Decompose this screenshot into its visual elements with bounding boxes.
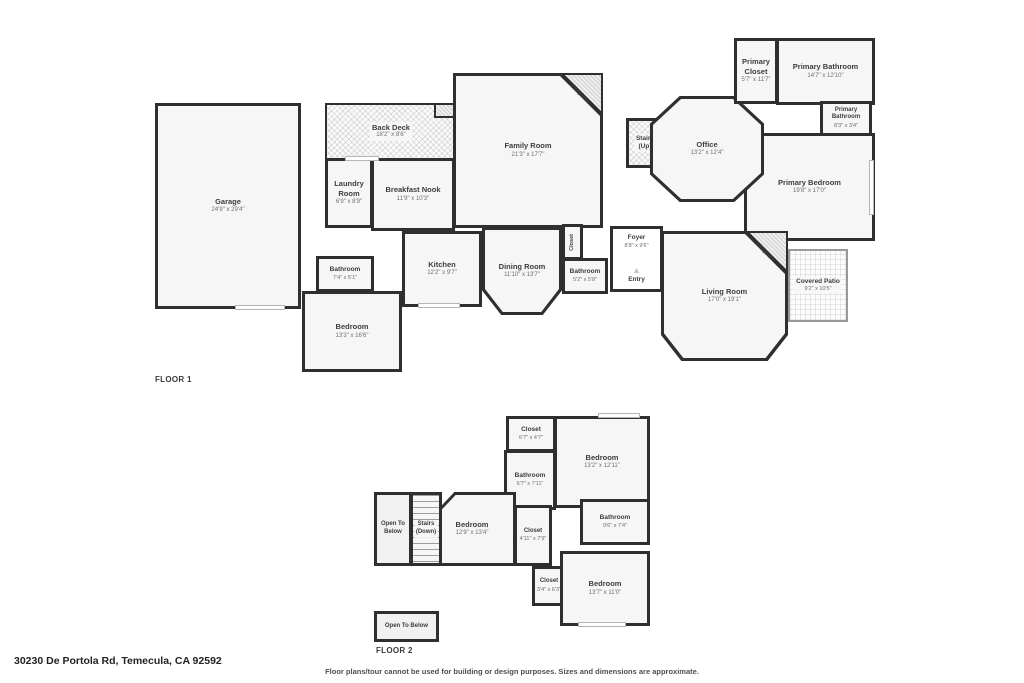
room-bathroom-center: Bathroom 5'2" x 5'8" <box>562 258 608 294</box>
disclaimer-text: Floor plans/tour cannot be used for buil… <box>325 667 699 676</box>
back-deck-label: Back Deck 18'2" x 8'6" <box>370 122 412 142</box>
room-garage: Garage 24'9" x 29'4" <box>155 103 301 309</box>
window-marker <box>345 156 379 161</box>
dining-floor: Dining Room 11'10" x 13'7" <box>485 230 559 312</box>
room2-bathroom-e: Bathroom 9'6" x 7'4" <box>580 499 650 545</box>
office-floor: Office 13'2" x 12'4" <box>653 99 761 199</box>
room2-bedroom-s: Bedroom 13'7" x 11'0" <box>560 551 650 626</box>
room-foyer-entry: Foyer 8'8" x 9'6" ▲ Entry <box>610 226 663 292</box>
room-covered-patio: Covered Patio 9'2" x 10'5" <box>788 249 848 322</box>
floor2-label: FLOOR 2 <box>376 646 413 655</box>
window-marker <box>418 303 460 308</box>
room-primary-closet: Primary Closet 5'7" x 11'7" <box>734 38 778 104</box>
floor-plan-page: Garage 24'9" x 29'4" Back Deck 18'2" x 8… <box>0 0 1024 683</box>
room-kitchen: Kitchen 12'2" x 9'7" <box>402 231 482 307</box>
room2-closet-top: Closet 6'7" x 4'7" <box>506 416 556 452</box>
room2-bedroom-ne: Bedroom 13'2" x 12'11" <box>554 416 650 508</box>
window-marker <box>578 622 626 627</box>
living-room-fireplace: Fireplace <box>744 233 786 275</box>
entry-area: ▲ Entry <box>628 266 645 284</box>
room-dining: Dining Room 11'10" x 13'7" <box>482 227 562 315</box>
property-address: 30230 De Portola Rd, Temecula, CA 92592 <box>14 655 222 667</box>
room2-open-below-left: Open To Below <box>374 492 412 566</box>
room-closet-hall: Closet <box>562 224 583 260</box>
window-marker <box>869 160 874 215</box>
room2-stairs-down: Stairs (Down) <box>410 492 442 566</box>
room-primary-bathroom: Primary Bathroom 14'7" x 12'10" <box>776 38 875 105</box>
room2-open-below-bottom: Open To Below <box>374 611 439 642</box>
window-marker <box>598 413 640 418</box>
room-office: Office 13'2" x 12'4" <box>650 96 764 202</box>
entry-arrow-icon: ▲ <box>632 266 641 275</box>
patio-label: Covered Patio 9'2" x 10'5" <box>794 277 842 295</box>
family-room-fireplace: Fireplace <box>559 75 601 117</box>
room-bathroom-hall: Bathroom 7'4" x 5'1" <box>316 256 374 292</box>
foyer-label: Foyer 8'8" x 9'6" <box>624 234 648 251</box>
room-breakfast-nook: Breakfast Nook 11'9" x 10'3" <box>371 158 455 231</box>
room-laundry: Laundry Room 6'9" x 8'9" <box>325 158 373 228</box>
room-primary-bathroom-2: Primary Bathroom 8'3" x 3'4" <box>820 101 872 136</box>
stairs-down-label: Stairs (Down) <box>414 520 438 538</box>
room2-closet-mid: Closet 4'11" x 7'9" <box>514 505 552 566</box>
floor1-label: FLOOR 1 <box>155 375 192 384</box>
window-marker <box>235 305 285 310</box>
room-bedroom-front: Bedroom 13'3" x 16'6" <box>302 291 402 372</box>
